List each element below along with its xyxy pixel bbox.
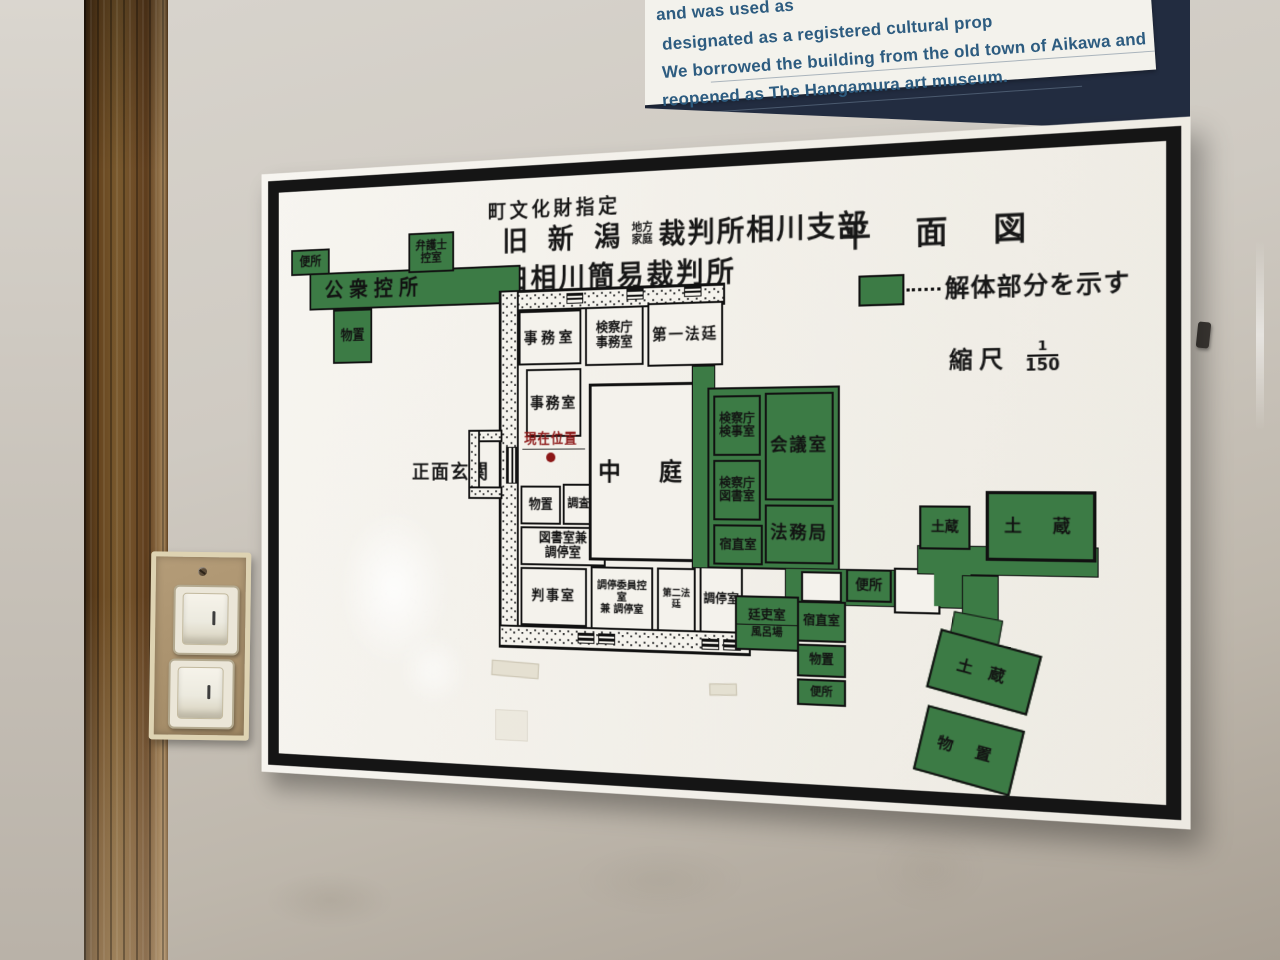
plan-map-type: 平 面 図 (840, 200, 1044, 255)
tape-mark (709, 683, 737, 695)
scale-denominator: 150 (1025, 357, 1060, 374)
museum-sign: and was used as designated as a register… (645, 0, 1190, 132)
switch-rocker (177, 667, 224, 720)
room-chotei-iin-hikae: 調停委員控室 兼 調停室 (591, 566, 653, 631)
room-furoba-label: 風呂場 (751, 627, 783, 640)
scale-numerator: 1 (1037, 339, 1047, 353)
room-dai1-hotei: 第一法廷 (647, 301, 723, 367)
porch-wall (468, 486, 502, 499)
tape-mark (491, 659, 539, 679)
room-monooki-inner: 物置 (521, 486, 561, 525)
switch-rocker (182, 593, 229, 646)
wooden-post (84, 0, 168, 960)
courtyard: 中 庭 (589, 382, 700, 563)
room-monooki-nw: 物置 (333, 309, 372, 364)
room-monooki-rotated: 物 置 (913, 705, 1025, 797)
door-mark (578, 633, 595, 644)
legend-dots (907, 287, 941, 291)
door-mark (626, 288, 643, 299)
entrance-door-mark (506, 447, 518, 484)
scale-label: 縮尺 (949, 340, 1010, 375)
title-small-katei: 家庭 (632, 233, 653, 246)
nail-mark (1196, 321, 1212, 348)
door-mark (702, 639, 720, 651)
room-teirishitsu-label: 廷吏室 (748, 607, 786, 622)
tape-mark (495, 709, 528, 742)
room-kaigishitsu: 会議室 (765, 392, 834, 501)
title-court-suffix: 裁判所相川支部 (658, 203, 868, 253)
legend-swatch (858, 274, 904, 307)
room-shukuchokushitsu-1: 宿直室 (713, 524, 763, 565)
light-switch-bottom (168, 659, 235, 730)
room-bengoshi-hikaeshitsu: 弁護士 控室 (408, 231, 454, 273)
room-kensatsu-tosho: 検察庁 図書室 (713, 460, 761, 521)
light-switch-top (173, 585, 240, 656)
legend-label: 解体部分を示す (945, 261, 1131, 304)
room-dozo-rotated: 土 蔵 (926, 629, 1042, 716)
current-location-label: 現在位置 (524, 427, 577, 447)
door-mark (684, 285, 702, 297)
floorplan-board: 町文化財指定 旧 新 潟 地方 家庭 裁判所相川支部 旧相川簡易裁判所 平 面 … (262, 116, 1191, 829)
room-teirishitsu-furoba: 廷吏室 風呂場 (735, 595, 799, 652)
room-bensho-low: 便所 (797, 678, 846, 707)
current-location-line (522, 448, 585, 449)
wall-left (0, 0, 86, 960)
room-kensatsucho-jimushitsu: 検察庁 事務室 (585, 305, 644, 366)
room-dozo-small: 土蔵 (919, 505, 970, 550)
light-switch-plate (149, 551, 252, 740)
white-cutout (801, 571, 842, 603)
wall-streak (1256, 240, 1264, 430)
room-hanjishitsu: 判事室 (521, 567, 587, 627)
room-dai2-hotei: 第二法廷 (657, 567, 696, 632)
room-shukuchokushitsu-2: 宿直室 (797, 601, 846, 643)
room-bensho-mid: 便所 (846, 569, 892, 603)
glare-reflection (398, 631, 468, 710)
screw-icon (198, 567, 207, 576)
room-kenjishitsu: 検察庁 検事室 (713, 395, 761, 456)
door-mark (566, 293, 583, 304)
room-monooki-2: 物置 (797, 644, 846, 679)
room-jimushitsu-1: 事務室 (519, 309, 582, 365)
photo-scene: and was used as designated as a register… (0, 0, 1280, 960)
room-homukyoku: 法務局 (765, 504, 834, 564)
current-location-dot (546, 453, 555, 463)
title-court-prefix: 旧 新 潟 (502, 215, 626, 260)
floorplan: 町文化財指定 旧 新 潟 地方 家庭 裁判所相川支部 旧相川簡易裁判所 平 面 … (280, 142, 1165, 804)
room-dozo-large: 土 蔵 (986, 491, 1097, 563)
scale-note: 縮尺 1 150 (949, 339, 1060, 375)
door-mark (598, 633, 615, 644)
